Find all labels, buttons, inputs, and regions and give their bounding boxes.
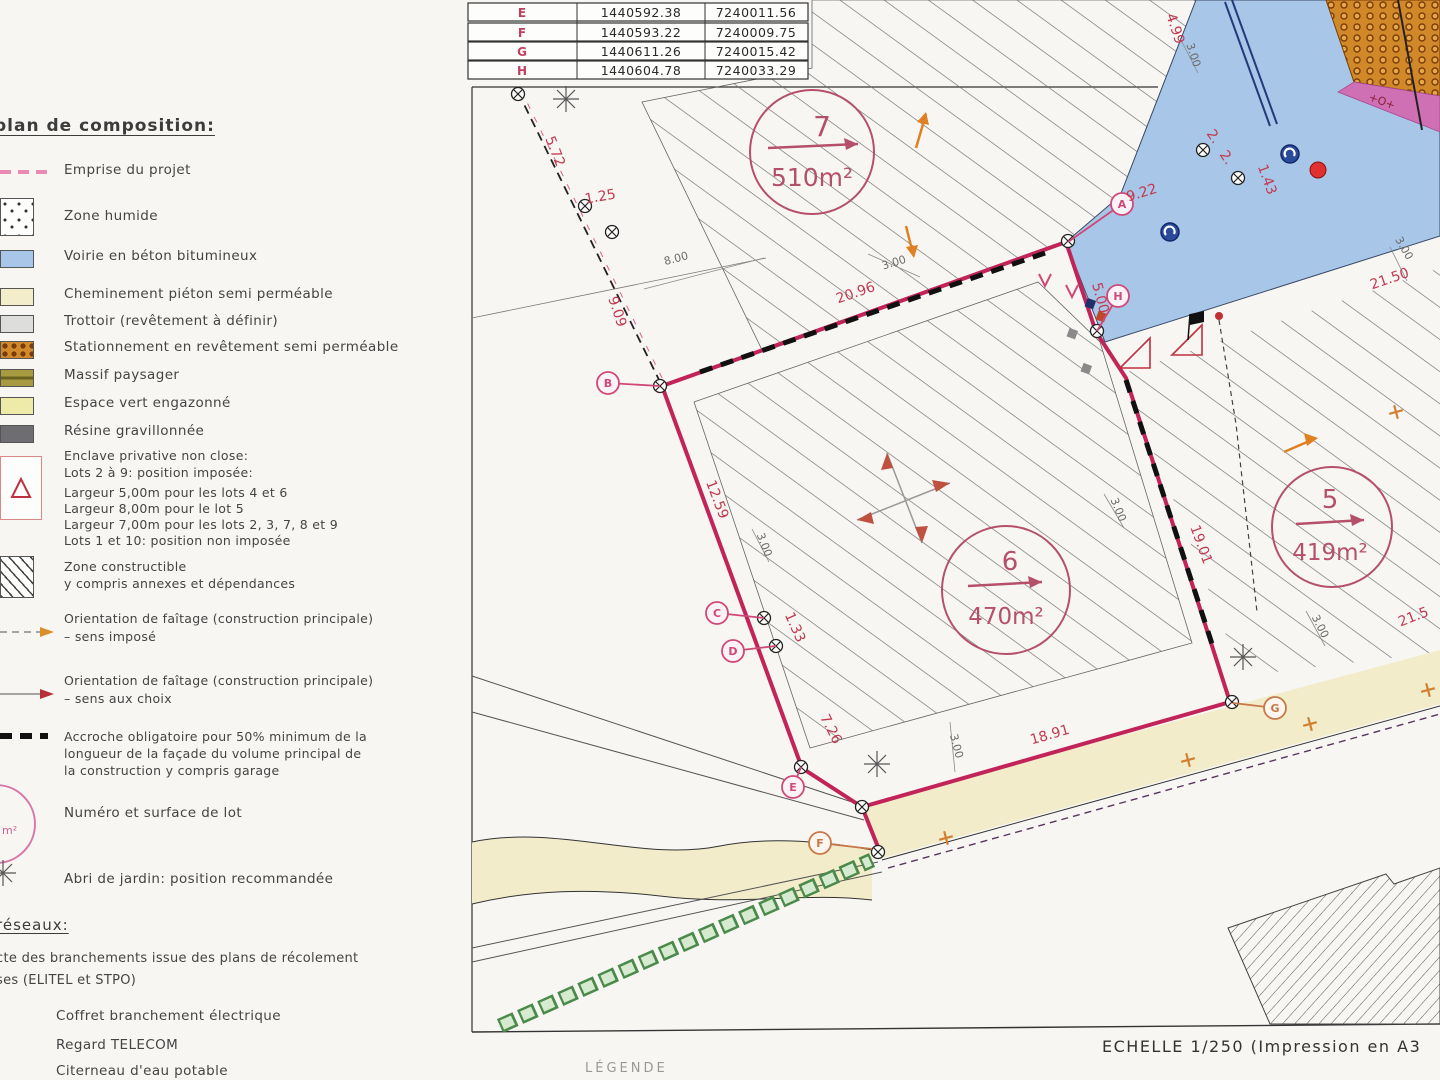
coordinate-table: E 1440592.38 7240011.56 F 1440593.22 724… (468, 3, 808, 79)
constructible-swatch-icon (0, 556, 34, 598)
legend-label: Espace vert engazonné (64, 395, 231, 411)
shed-star-icon (553, 86, 579, 112)
svg-text:7: 7 (813, 110, 831, 143)
legend-label: Zone constructible (64, 559, 186, 574)
reseaux-title: réseaux: (0, 916, 69, 934)
table-y: 7240011.56 (716, 5, 797, 20)
point-label-h: H (1113, 290, 1122, 303)
legend-label: Orientation de faîtage (construction pri… (64, 673, 373, 688)
water-utility-icon (1281, 145, 1299, 163)
legend-label: Zone humide (64, 208, 158, 224)
massif-swatch-icon (0, 369, 34, 387)
water-utility-icon (1161, 223, 1179, 241)
point-label-g: G (1270, 702, 1279, 715)
stationnement-swatch-icon (0, 341, 34, 359)
svg-text:419m²: 419m² (1292, 540, 1368, 566)
legend-label: Trottoir (revêtement à définir) (64, 313, 278, 329)
table-y: 7240015.42 (716, 44, 797, 59)
table-y: 7240009.75 (716, 25, 797, 40)
point-label-f: F (816, 837, 824, 850)
shed-star-icon (864, 751, 890, 777)
lot-number-symbol-text: m² (2, 824, 17, 837)
zone-humide-swatch-icon (0, 198, 34, 236)
legend-label: Largeur 5,00m pour les lots 4 et 6 (64, 485, 288, 500)
site-plan-document: +O+ (0, 0, 1440, 1080)
svg-text:5.72: 5.72 (541, 134, 568, 169)
table-y: 7240033.29 (716, 63, 797, 78)
svg-text:510m²: 510m² (771, 163, 853, 192)
reseaux-item-telecom: Regard TELECOM (56, 1037, 178, 1053)
legend-label: – sens imposé (64, 629, 156, 644)
legend-label: Lots 1 et 10: position non imposée (64, 533, 291, 548)
table-x: 1440611.26 (601, 44, 682, 59)
small-red-marker (1215, 312, 1223, 320)
table-point: G (517, 45, 527, 59)
legend-label: Largeur 7,00m pour les lots 2, 3, 7, 8 e… (64, 517, 338, 532)
point-label-c: C (713, 607, 721, 620)
legend-label: – sens aux choix (64, 691, 172, 706)
legend-label: Cheminement piéton semi perméable (64, 286, 333, 302)
legend-label: Accroche obligatoire pour 50% minimum de… (64, 729, 367, 744)
legend-label: Lots 2 à 9: position imposée: (64, 465, 253, 480)
reseaux-note: ses (ELITEL et STPO) (0, 973, 136, 988)
cheminement-swatch-icon (0, 288, 34, 306)
legend-label: la construction y compris garage (64, 763, 280, 778)
legend-label: Emprise du projet (64, 162, 191, 178)
survey-point (1197, 144, 1210, 157)
legend-label: longueur de la façade du volume principa… (64, 746, 361, 761)
svg-text:3.00: 3.00 (947, 733, 966, 760)
electric-utility-icon (1310, 162, 1326, 178)
svg-text:6: 6 (1002, 547, 1019, 577)
property-dashed-line (518, 90, 665, 386)
legend-label: Numéro et surface de lot (64, 805, 242, 821)
enclave-triangle-icon (1, 457, 41, 519)
reseaux-item-coffret: Coffret branchement électrique (56, 1008, 281, 1024)
legend-label: Résine gravillonnée (64, 423, 204, 439)
svg-text:1.25: 1.25 (584, 186, 617, 207)
table-point: H (517, 64, 527, 78)
table-x: 1440604.78 (601, 63, 682, 78)
reseaux-note: cte des branchements issue des plans de … (0, 951, 358, 966)
solid-arrow-icon (0, 687, 56, 701)
emprise-line-icon (0, 170, 48, 174)
table-x: 1440592.38 (601, 5, 682, 20)
trottoir-swatch-icon (0, 315, 34, 333)
svg-text:8.00: 8.00 (663, 249, 690, 268)
survey-point (512, 88, 525, 101)
shed-star-legend-icon (0, 856, 20, 890)
survey-point (872, 846, 885, 859)
voirie-swatch-icon (0, 250, 34, 268)
espace-vert-swatch-icon (0, 397, 34, 415)
dashed-arrow-icon (0, 625, 56, 639)
legend-label: Stationnement en revêtement semi perméab… (64, 339, 399, 355)
legend-label: Voirie en béton bitumineux (64, 248, 257, 264)
scale-note: ECHELLE 1/250 (Impression en A3 (1102, 1037, 1421, 1056)
survey-point (606, 226, 619, 239)
svg-text:470m²: 470m² (968, 604, 1044, 630)
svg-text:18.91: 18.91 (1028, 722, 1071, 748)
existing-building-hatch (1228, 868, 1440, 1024)
point-label-d: D (728, 645, 737, 658)
table-x: 1440593.22 (601, 25, 682, 40)
svg-text:5: 5 (1322, 485, 1339, 515)
table-point: F (518, 26, 526, 40)
point-label-a: A (1118, 198, 1127, 211)
point-label-b: B (604, 377, 612, 390)
partial-caption: LÉGENDE (585, 1060, 668, 1076)
legend-label: Enclave privative non close: (64, 448, 248, 463)
legend-label: Massif paysager (64, 367, 179, 383)
point-label-e: E (789, 781, 797, 794)
legend-label: Abri de jardin: position recommandée (64, 871, 333, 887)
reseaux-item-citerneau: Citerneau d'eau potable (56, 1063, 228, 1079)
survey-point (1226, 696, 1239, 709)
legend-label: Largeur 8,00m pour le lot 5 (64, 501, 244, 516)
survey-point (1232, 172, 1245, 185)
resine-swatch-icon (0, 425, 34, 443)
legend-label: Orientation de faîtage (construction pri… (64, 611, 373, 626)
enclave-swatch-icon (0, 456, 42, 520)
survey-point (856, 801, 869, 814)
table-point: E (518, 6, 526, 20)
legend-title: plan de composition: (0, 116, 215, 136)
svg-text:9.09: 9.09 (604, 294, 629, 329)
accroche-dash-icon (0, 733, 48, 739)
legend-label: y compris annexes et dépendances (64, 576, 295, 591)
